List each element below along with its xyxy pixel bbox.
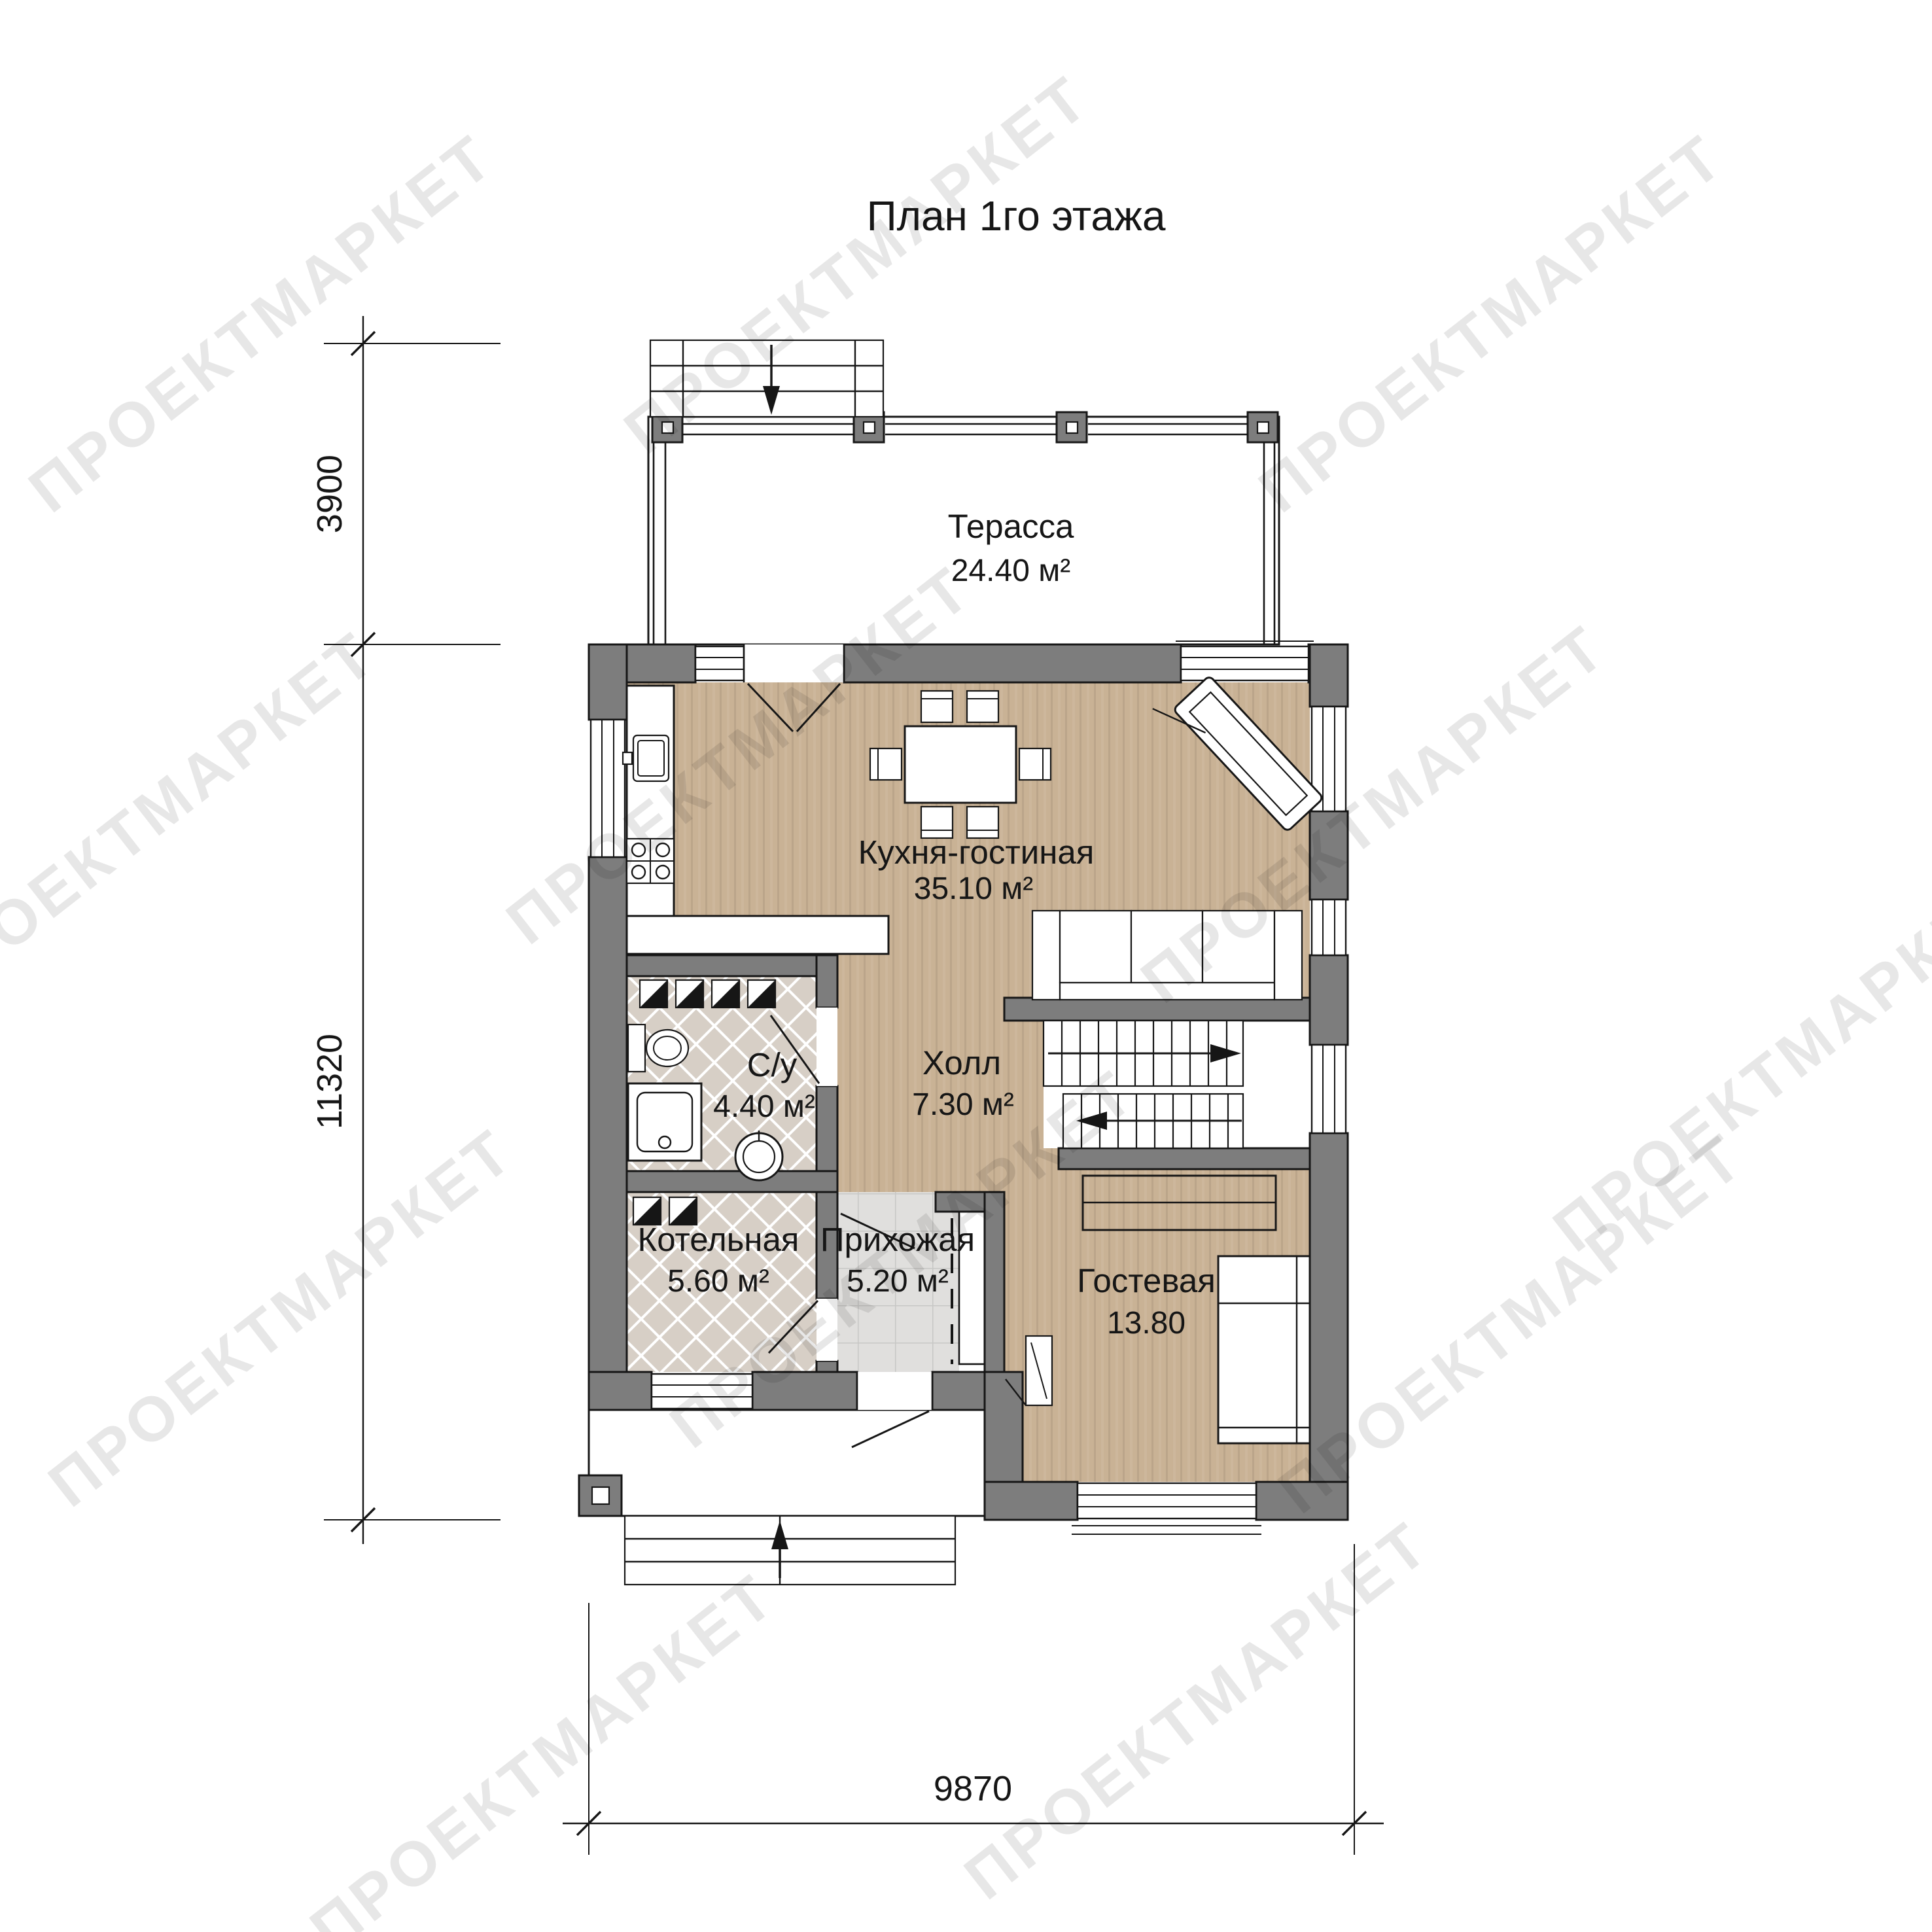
watermark: ПРОЕКТМАРКЕТ — [0, 618, 389, 1023]
room-label-guest: Гостевая — [1077, 1262, 1216, 1299]
living-top-window — [1176, 641, 1314, 680]
room-area-bathroom: 4.40 м² — [713, 1089, 815, 1124]
room-area-boiler: 5.60 м² — [667, 1264, 769, 1299]
watermark: ПРОЕКТМАРКЕТ — [1246, 121, 1737, 526]
dimension-terrace-depth: 3900 — [310, 455, 349, 533]
watermark: ПРОЕКТМАРКЕТ — [298, 1560, 788, 1932]
watermark: ПРОЕКТМАРКЕТ — [952, 1508, 1443, 1913]
dimension-left: 3900 11320 — [310, 316, 501, 1544]
room-area-hall: 7.30 м² — [912, 1087, 1014, 1122]
room-label-boiler: Котельная — [638, 1221, 799, 1258]
shower-tray — [628, 1083, 701, 1161]
dimension-house-side: 11320 — [310, 1034, 349, 1129]
terrace-railing-top — [683, 424, 1249, 434]
kitchen-counter-horizontal — [627, 916, 888, 954]
dining-table — [905, 726, 1016, 803]
guest-left-exterior-wall — [985, 1372, 1023, 1482]
room-label-kitchen-living: Кухня-гостиная — [858, 834, 1095, 871]
floor-plan-sheet: 3900 11320 9870 Терасса 24.40 м² Кухня-г… — [0, 0, 1932, 1932]
guest-bed — [1218, 1256, 1310, 1443]
guest-bottom-window — [1072, 1483, 1261, 1534]
watermark: ПРОЕКТМАРКЕТ — [16, 121, 507, 526]
room-label-bathroom: С/у — [747, 1046, 798, 1083]
room-label-terrace: Терасса — [948, 508, 1074, 545]
top-wall-side-window — [695, 646, 744, 680]
living-stairs-wall — [1004, 998, 1310, 1021]
living-right-window-2 — [1312, 900, 1346, 955]
porch-structures — [579, 1475, 955, 1585]
kitchen-bathroom-wall — [627, 955, 837, 976]
porch-steps — [625, 1516, 955, 1585]
watermark: ПРОЕКТМАРКЕТ — [36, 1115, 527, 1520]
stair-landing-window — [1312, 1045, 1346, 1133]
watermark: ПРОЕКТМАРКЕТ — [1541, 860, 1932, 1265]
entrance-door — [852, 1372, 932, 1447]
floor-plan-drawing: 3900 11320 9870 Терасса 24.40 м² Кухня-г… — [0, 0, 1932, 1932]
room-area-kitchen-living: 35.10 м² — [914, 871, 1033, 906]
room-area-guest: 13.80 — [1107, 1306, 1186, 1341]
room-area-terrace: 24.40 м² — [951, 553, 1070, 588]
dimension-house-width: 9870 — [934, 1769, 1012, 1808]
room-label-hall: Холл — [922, 1044, 1001, 1081]
porch-deck — [589, 1410, 985, 1516]
bathroom-boiler-wall — [627, 1171, 837, 1192]
